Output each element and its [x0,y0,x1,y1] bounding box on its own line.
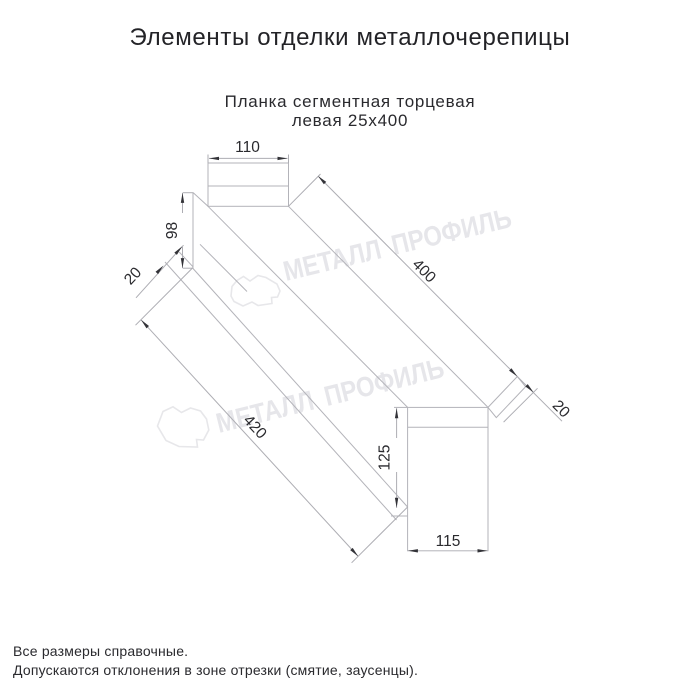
svg-text:МЕТАЛЛ ПРОФИЛЬ: МЕТАЛЛ ПРОФИЛЬ [280,201,515,287]
svg-text:400: 400 [409,256,440,287]
svg-text:110: 110 [235,139,260,156]
svg-text:98: 98 [164,222,181,239]
svg-text:125: 125 [377,445,394,471]
svg-text:20: 20 [549,397,573,421]
svg-text:20: 20 [121,264,145,288]
svg-text:115: 115 [436,533,461,550]
